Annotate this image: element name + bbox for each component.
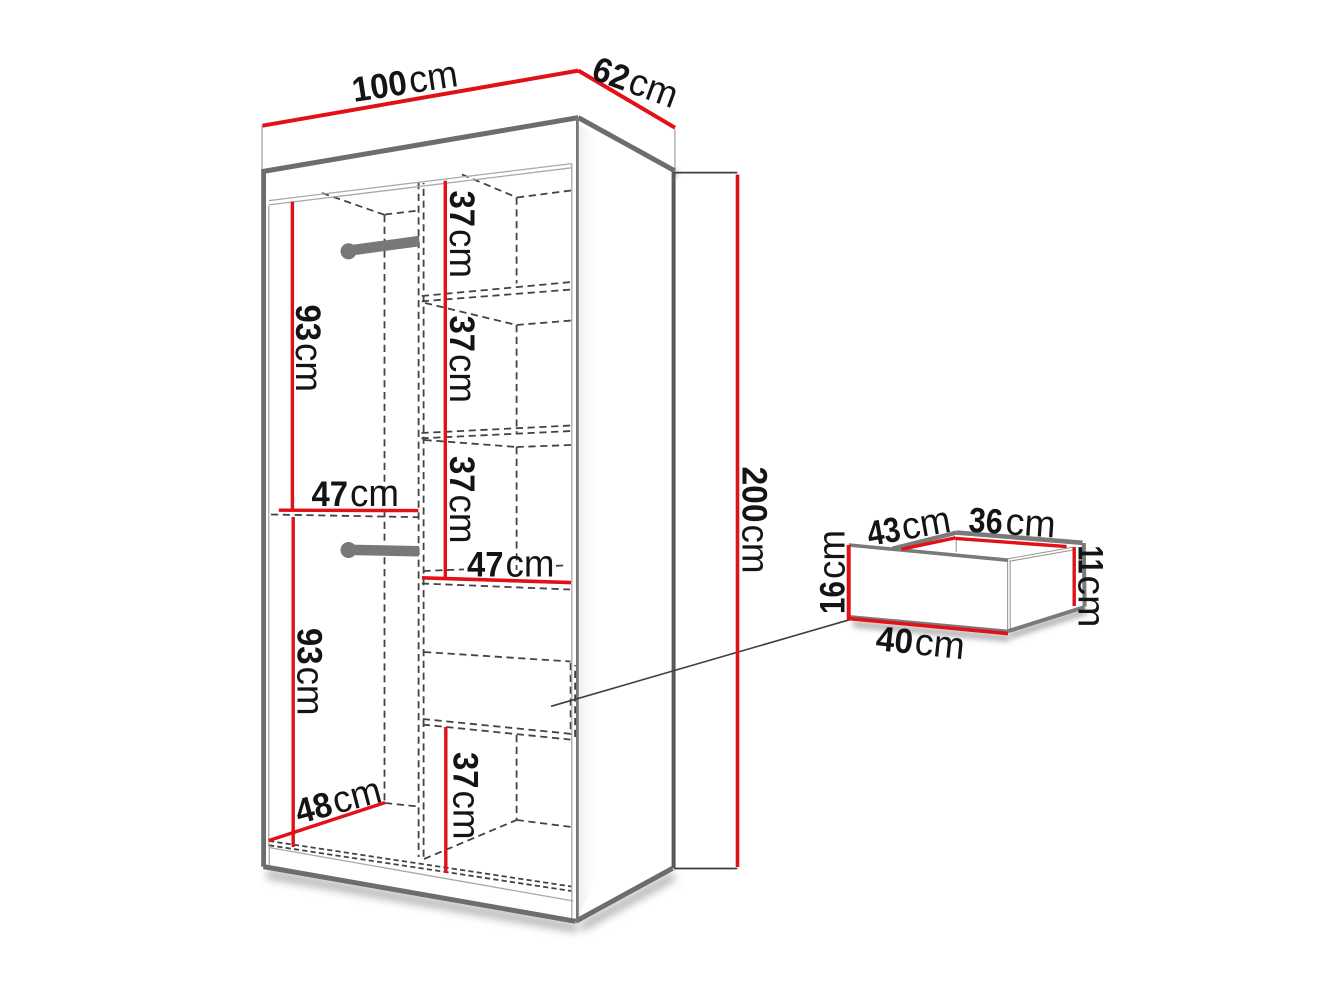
svg-text:36: 36 bbox=[967, 501, 1004, 542]
svg-text:cm: cm bbox=[441, 229, 483, 278]
svg-text:93: 93 bbox=[288, 305, 327, 342]
svg-text:37: 37 bbox=[442, 316, 481, 353]
svg-text:47: 47 bbox=[467, 546, 504, 585]
svg-text:cm: cm bbox=[406, 53, 461, 102]
svg-text:37: 37 bbox=[445, 752, 484, 789]
svg-text:93: 93 bbox=[289, 628, 328, 665]
svg-text:37: 37 bbox=[442, 456, 481, 493]
svg-text:cm: cm bbox=[898, 499, 954, 549]
svg-text:43: 43 bbox=[864, 510, 903, 554]
svg-text:cm: cm bbox=[444, 791, 486, 840]
svg-text:200: 200 bbox=[735, 467, 774, 523]
svg-text:100: 100 bbox=[349, 63, 409, 110]
svg-text:cm: cm bbox=[288, 667, 330, 716]
svg-text:cm: cm bbox=[1070, 576, 1112, 628]
svg-text:cm: cm bbox=[1004, 501, 1057, 546]
svg-text:cm: cm bbox=[812, 530, 854, 579]
svg-text:cm: cm bbox=[350, 473, 399, 515]
svg-text:cm: cm bbox=[441, 495, 483, 544]
svg-text:cm: cm bbox=[506, 544, 555, 586]
svg-text:cm: cm bbox=[441, 354, 483, 403]
svg-text:47: 47 bbox=[312, 475, 349, 514]
svg-text:cm: cm bbox=[734, 525, 776, 574]
svg-text:cm: cm bbox=[913, 621, 967, 668]
svg-text:40: 40 bbox=[874, 619, 915, 662]
svg-text:11: 11 bbox=[1071, 546, 1110, 574]
svg-text:16: 16 bbox=[814, 581, 853, 614]
svg-text:37: 37 bbox=[442, 191, 481, 228]
svg-text:cm: cm bbox=[287, 343, 329, 392]
